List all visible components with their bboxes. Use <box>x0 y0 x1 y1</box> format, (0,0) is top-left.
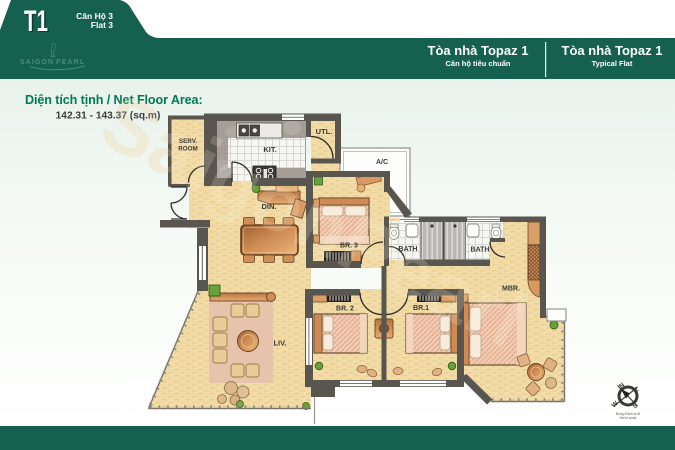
svg-text:T1: T1 <box>24 5 48 38</box>
svg-text:UTL.: UTL. <box>316 127 333 136</box>
svg-text:MBR.: MBR. <box>502 286 520 293</box>
svg-text:Tòa nhà Topaz 1: Tòa nhà Topaz 1 <box>428 43 529 58</box>
svg-text:Flat 3: Flat 3 <box>91 20 113 30</box>
svg-text:BR. 2: BR. 2 <box>336 306 354 313</box>
svg-text:SAIGON: SAIGON <box>20 59 54 66</box>
svg-text:SERV.: SERV. <box>179 138 197 145</box>
svg-text:PEARL: PEARL <box>56 59 85 66</box>
svg-text:Căn hộ tiêu chuẩn: Căn hộ tiêu chuẩn <box>445 59 510 68</box>
svg-text:Typical Flat: Typical Flat <box>592 59 633 68</box>
svg-text:Tòa nhà Topaz 1: Tòa nhà Topaz 1 <box>562 43 663 58</box>
svg-text:BR. 3: BR. 3 <box>340 243 358 250</box>
svg-text:BATH: BATH <box>399 246 418 253</box>
svg-text:Not to scale: Not to scale <box>620 416 637 420</box>
svg-text:BR.1: BR.1 <box>413 305 429 312</box>
svg-text:KIT.: KIT. <box>263 145 276 154</box>
svg-text:BATH: BATH <box>471 247 490 254</box>
svg-text:ROOM: ROOM <box>178 146 198 153</box>
svg-text:A/C: A/C <box>376 159 388 166</box>
svg-text:LIV.: LIV. <box>273 339 286 348</box>
svg-text:DIN.: DIN. <box>262 202 277 211</box>
